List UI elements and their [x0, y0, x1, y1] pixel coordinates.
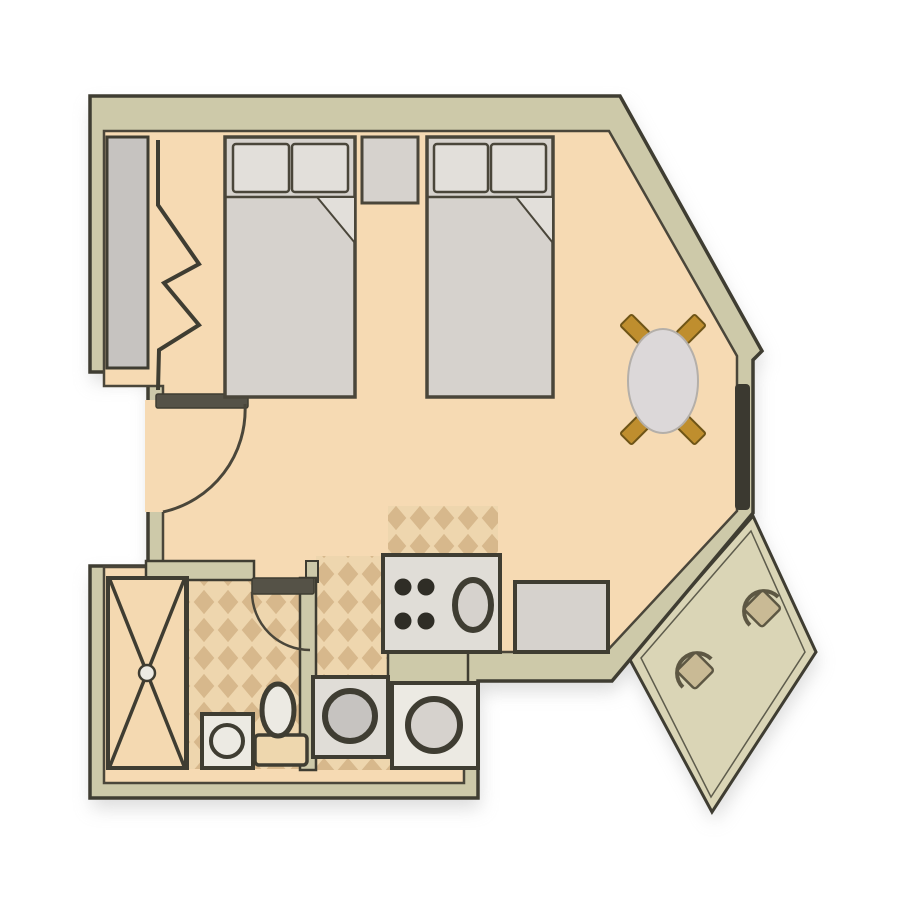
bed-2-pillow-left — [434, 144, 488, 192]
kitchen-counter — [515, 582, 608, 652]
dryer-drum — [408, 699, 460, 751]
shower-drain — [139, 665, 155, 681]
bed-1 — [225, 137, 355, 397]
dining-set — [620, 314, 706, 445]
bed-2 — [427, 137, 553, 397]
entry-opening — [145, 400, 165, 512]
bed-1-pillow-right — [292, 144, 348, 192]
bed-1-pillow-left — [233, 144, 289, 192]
closet-cabinet — [107, 137, 148, 368]
toilet-bowl — [262, 684, 294, 736]
toilet-tank — [255, 735, 307, 765]
floor-plan-drawing — [0, 0, 900, 900]
balcony-window — [735, 384, 750, 510]
burner-2 — [418, 579, 435, 596]
burner-1 — [395, 579, 412, 596]
burner-4 — [418, 613, 435, 630]
kitchen-sink — [455, 580, 491, 630]
burner-3 — [395, 613, 412, 630]
bathroom-door-leaf — [252, 578, 314, 594]
bed-2-pillow-right — [491, 144, 546, 192]
dining-table — [628, 329, 698, 433]
washer-drum — [325, 691, 375, 741]
nightstand — [362, 137, 418, 203]
kitchen-bottom-wall — [388, 652, 468, 683]
floor-plan-page — [0, 0, 900, 900]
